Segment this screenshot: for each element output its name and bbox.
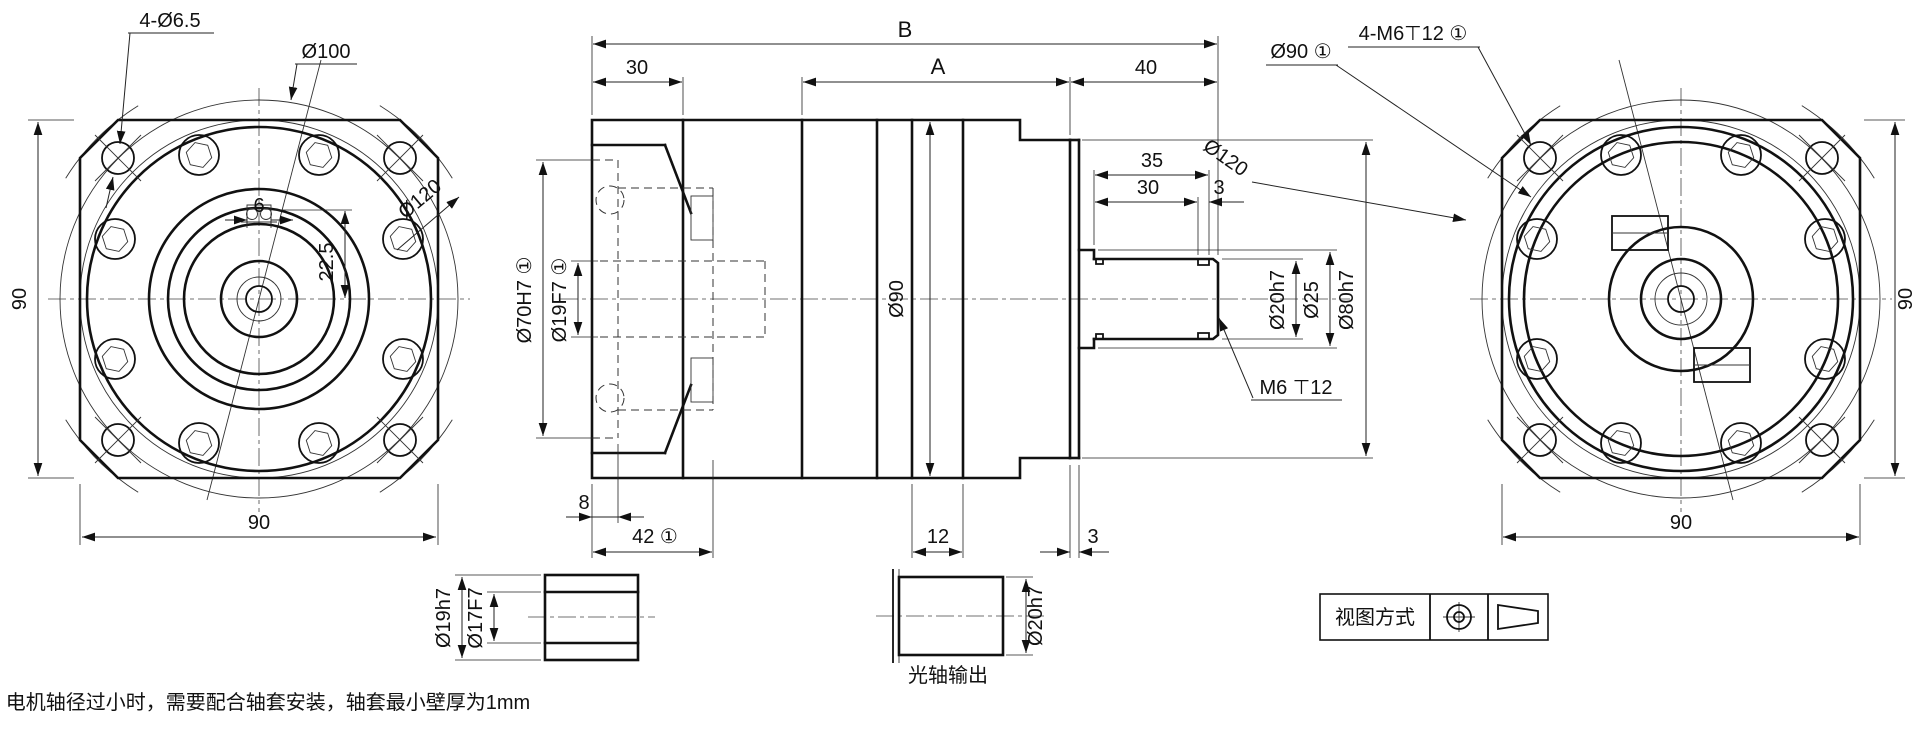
rear-width: 90 [1670,512,1692,534]
drawing-note: 电机轴径过小时，需要配合轴套安装，轴套最小壁厚为1mm [6,691,530,714]
plain-shaft-dia: Ø20h7 [1025,586,1047,646]
bushing-id: Ø17F7 [465,587,487,648]
groove-3: 3 [1213,177,1224,199]
body-length: A [931,54,946,79]
engineering-drawing: 4-Ø6.5 Ø100 Ø120 6 22.5 90 [0,0,1920,741]
plain-shaft-detail: Ø20h7 光轴输出 [876,569,1048,687]
pilot-depth: 8 [578,492,589,514]
rear-corner-callout: Ø120 [1199,135,1252,181]
flange-length: 30 [626,57,648,79]
side-view: B 30 A 40 35 30 3 Ø90 [514,17,1373,558]
collar-dia: Ø25 [1301,281,1323,319]
face-3: 3 [1087,526,1098,548]
cavity-depth: 42 ① [632,526,678,548]
side-bottom-dimensions: 8 42 ① 12 3 [566,444,1109,558]
body-dia: Ø90 [886,280,908,318]
shaft-30: 30 [1137,177,1159,199]
front-dimensions: 4-Ø6.5 Ø100 Ø120 6 22.5 90 [9,10,459,545]
key-height: 22.5 [316,243,338,282]
tap-callout: M6 ⊤12 [1259,377,1332,399]
shaft-dia: Ø20h7 [1267,270,1289,330]
ring-12: 12 [927,526,949,548]
pilot-dia: Ø70H7 ① [514,257,536,344]
bushing-detail: Ø19h7 Ø17F7 [433,575,655,660]
rear-body-callout: Ø90 ① [1270,41,1331,63]
bushing-od: Ø19h7 [433,588,455,648]
key-width: 6 [253,195,264,217]
front-height: 90 [9,288,31,310]
shaft-35: 35 [1141,150,1163,172]
bushing-dims: Ø19h7 Ø17F7 [433,575,541,660]
boss-dia: Ø80h7 [1336,270,1358,330]
front-view: 4-Ø6.5 Ø100 Ø120 6 22.5 90 [9,10,470,545]
side-top-dimensions: B 30 A 40 35 30 3 [592,17,1244,255]
shaft-extension: 40 [1135,57,1157,79]
total-length: B [898,17,913,42]
rear-taps-callout: 4-M6⊤12 ① [1359,23,1468,45]
hidden-bore-lines [592,160,765,438]
plain-shaft-caption: 光轴输出 [908,664,988,687]
bore-dia: Ø19F7 ① [549,258,571,343]
front-width: 90 [248,512,270,534]
projection-method-box: 视图方式 [1320,594,1548,640]
bolt-circle-callout: Ø100 [302,41,351,63]
rear-height: 90 [1895,288,1917,310]
holes-callout: 4-Ø6.5 [139,10,200,32]
projection-label: 视图方式 [1335,606,1415,629]
